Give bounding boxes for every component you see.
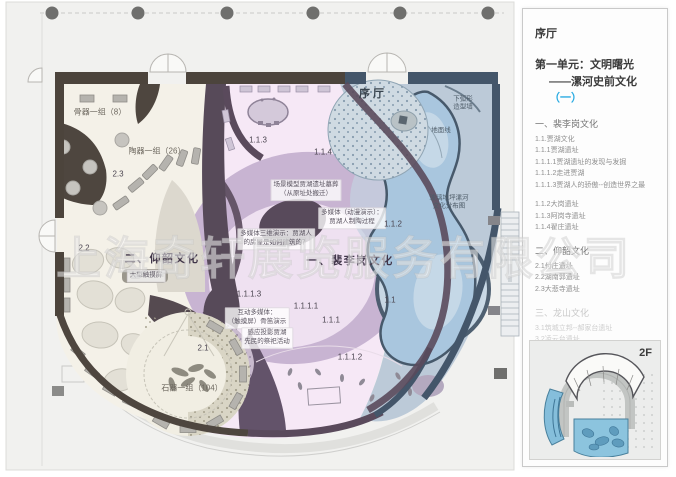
unit-title-line2-text: ——漯河史前文化: [549, 76, 637, 88]
section-item: 2.1付庄遗址: [535, 261, 657, 273]
section-item: 2.2湖南郭遗址: [535, 272, 657, 284]
section-item: 2.3大悲寺遗址: [535, 284, 657, 296]
unit-title-line1: 第一单元：文明曙光: [535, 57, 657, 74]
page: 骨器一组（8）陶器一组（26）2.32.2二、仰韶文化大型触摸屏2.1石器一组（…: [0, 0, 676, 477]
section-item: 1.1.4翟庄遗址: [535, 222, 657, 234]
floor-plan-drawing: [0, 0, 520, 477]
unit-title-line2: ——漯河史前文化（一）: [535, 74, 657, 107]
section-item: 3.1筑城立邦--郝家台遗址: [535, 323, 657, 335]
section-item: [535, 191, 657, 199]
section-item: 1.1.1.1贾湖遗址的发现与发掘: [535, 157, 657, 169]
section-item: 1.1.1.3贾湖人的骄傲--创造世界之最: [535, 180, 657, 192]
mini-map: 2F: [529, 340, 661, 460]
section-heading: 一、裴李岗文化: [535, 117, 657, 130]
section-item: 1.1.2大岗遗址: [535, 199, 657, 211]
legend-panel: 序厅 第一单元：文明曙光 ——漯河史前文化（一） 一、裴李岗文化1.1.贾湖文化…: [522, 8, 668, 467]
floor-label: 2F: [639, 347, 652, 359]
unit-number-accent: （一）: [549, 92, 582, 104]
stairs: [501, 212, 519, 336]
section-item: 1.1.3阿岗寺遗址: [535, 211, 657, 223]
section-item: 1.1.1贾湖遗址: [535, 145, 657, 157]
section-item: 1.1.1.2走进贾湖: [535, 168, 657, 180]
section-item: 1.1.贾湖文化: [535, 134, 657, 146]
section-heading: 三、龙山文化: [535, 306, 657, 319]
section-heading: 二、仰韶文化: [535, 244, 657, 257]
panel-hall-title: 序厅: [535, 25, 657, 41]
section-list: 一、裴李岗文化1.1.贾湖文化1.1.1贾湖遗址1.1.1.1贾湖遗址的发现与发…: [535, 117, 657, 369]
floor-plan: 骨器一组（8）陶器一组（26）2.32.2二、仰韶文化大型触摸屏2.1石器一组（…: [0, 0, 520, 477]
